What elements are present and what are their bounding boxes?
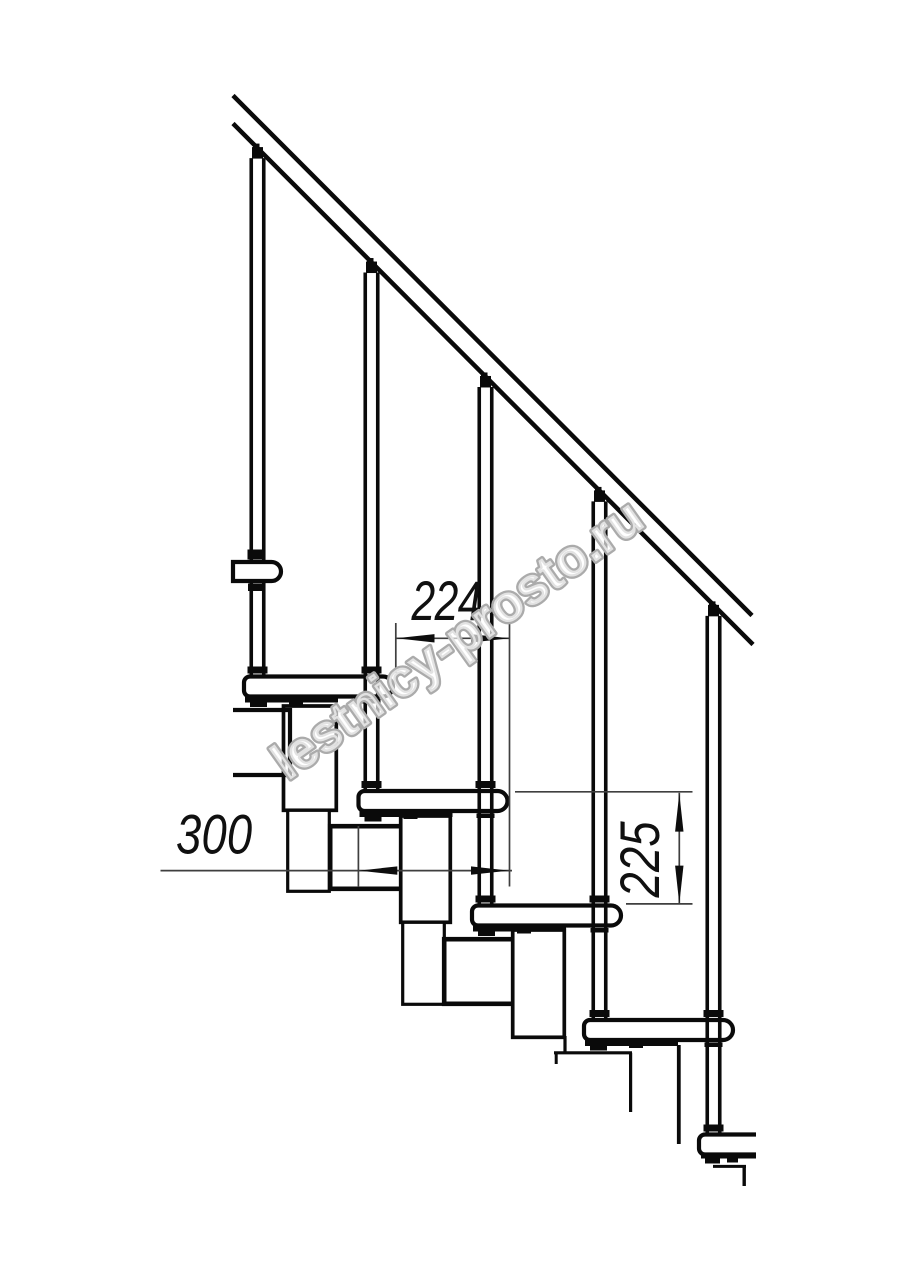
svg-text:225: 225 [608, 821, 671, 899]
svg-text:300: 300 [176, 803, 252, 866]
